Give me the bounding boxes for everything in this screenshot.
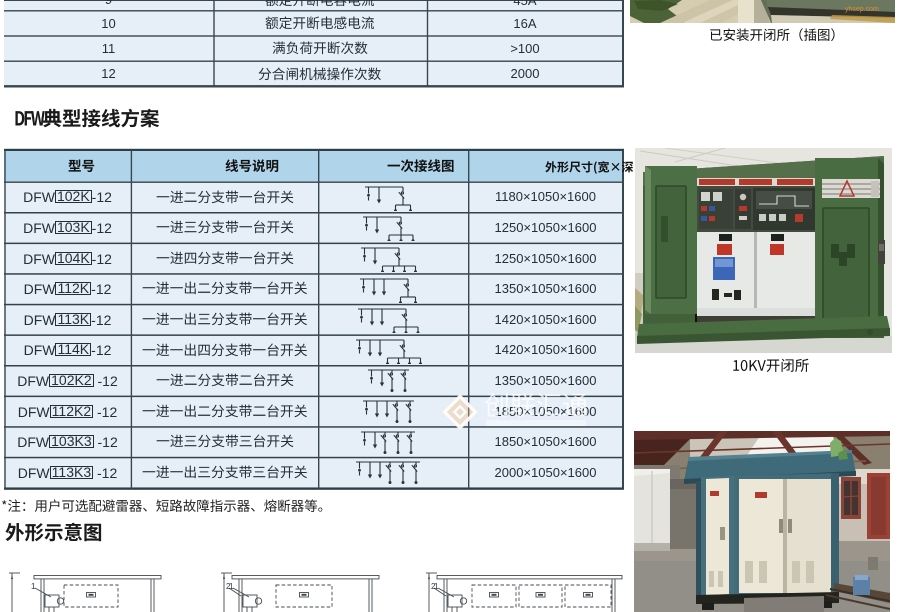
svg-text:1: 1 bbox=[31, 582, 36, 591]
svg-text:2: 2 bbox=[226, 582, 231, 591]
svg-text:yhsep.com: yhsep.com bbox=[845, 6, 879, 13]
svg-text:2: 2 bbox=[431, 582, 436, 591]
